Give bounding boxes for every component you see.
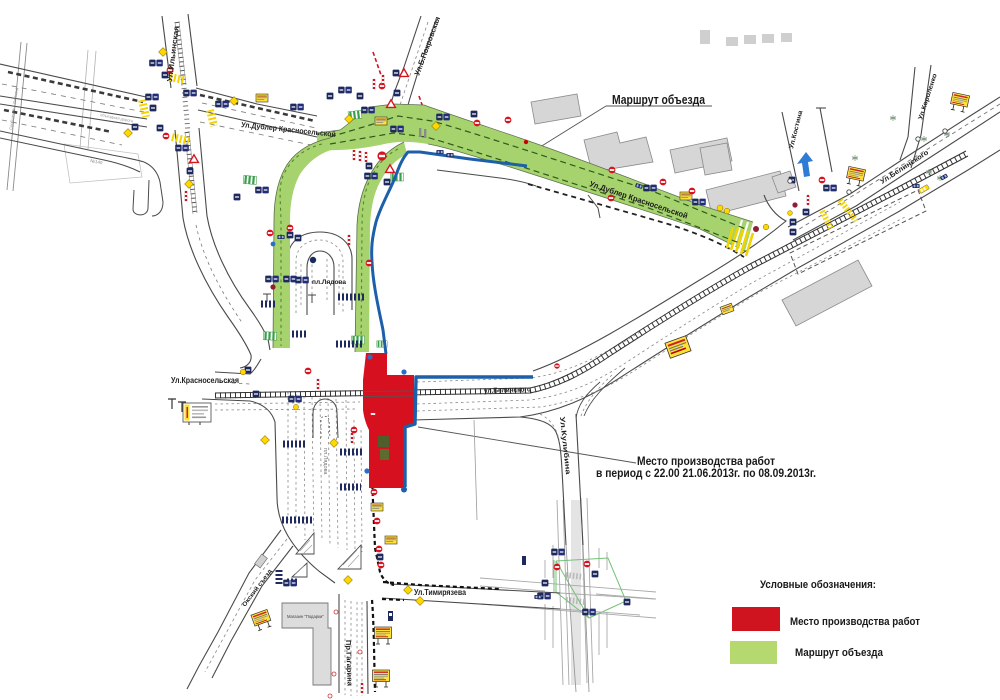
- svg-text:пл.Лядова: пл.Лядова: [322, 448, 328, 475]
- svg-text:Ул.Красносельская: Ул.Красносельская: [171, 376, 239, 385]
- svg-text:Место производства работ: Место производства работ: [637, 456, 775, 468]
- svg-text:Магазин "Подарки": Магазин "Подарки": [287, 614, 324, 619]
- svg-text:Место производства работ: Место производства работ: [790, 616, 920, 628]
- svg-text:Маршрут объезда: Маршрут объезда: [612, 93, 706, 107]
- svg-text:в период с 22.00 21.06.2013г.: в период с 22.00 21.06.2013г. по 08.09.2…: [596, 468, 816, 480]
- svg-text:Ул.Тимирязева: Ул.Тимирязева: [414, 588, 466, 597]
- svg-text:пл.Лядова: пл.Лядова: [312, 279, 346, 286]
- svg-text:Маршрут объезда: Маршрут объезда: [795, 647, 884, 659]
- svg-text:Условные обозначения:: Условные обозначения:: [760, 579, 876, 591]
